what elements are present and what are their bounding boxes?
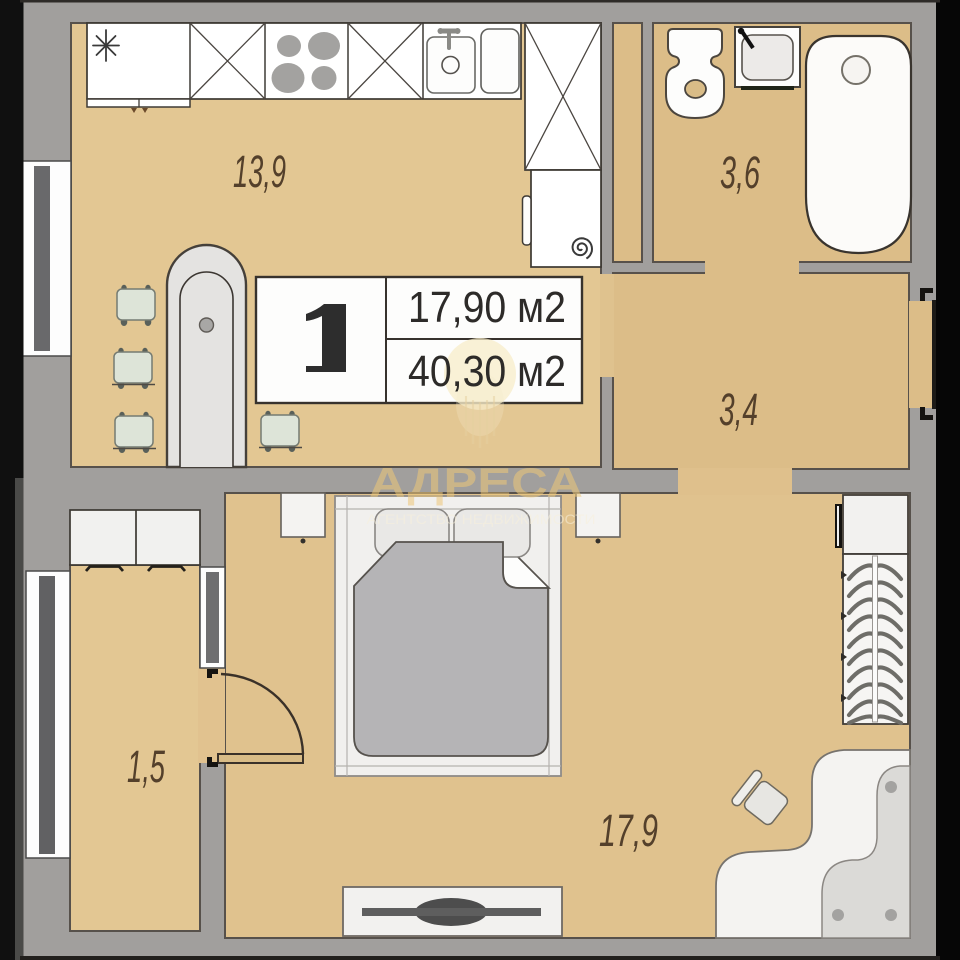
svg-text:17,90 м2: 17,90 м2 xyxy=(408,283,566,332)
svg-text:40,30 м2: 40,30 м2 xyxy=(408,347,566,396)
svg-text:17,9: 17,9 xyxy=(599,805,658,856)
svg-text:13,9: 13,9 xyxy=(233,146,286,197)
svg-text:3,4: 3,4 xyxy=(719,384,758,435)
svg-text:АГЕНТСТВО НЕДВИЖИМОСТИ: АГЕНТСТВО НЕДВИЖИМОСТИ xyxy=(367,511,596,527)
svg-text:АДРЕСА: АДРЕСА xyxy=(369,459,583,506)
svg-text:1,5: 1,5 xyxy=(127,741,166,792)
svg-text:3,6: 3,6 xyxy=(720,147,761,198)
